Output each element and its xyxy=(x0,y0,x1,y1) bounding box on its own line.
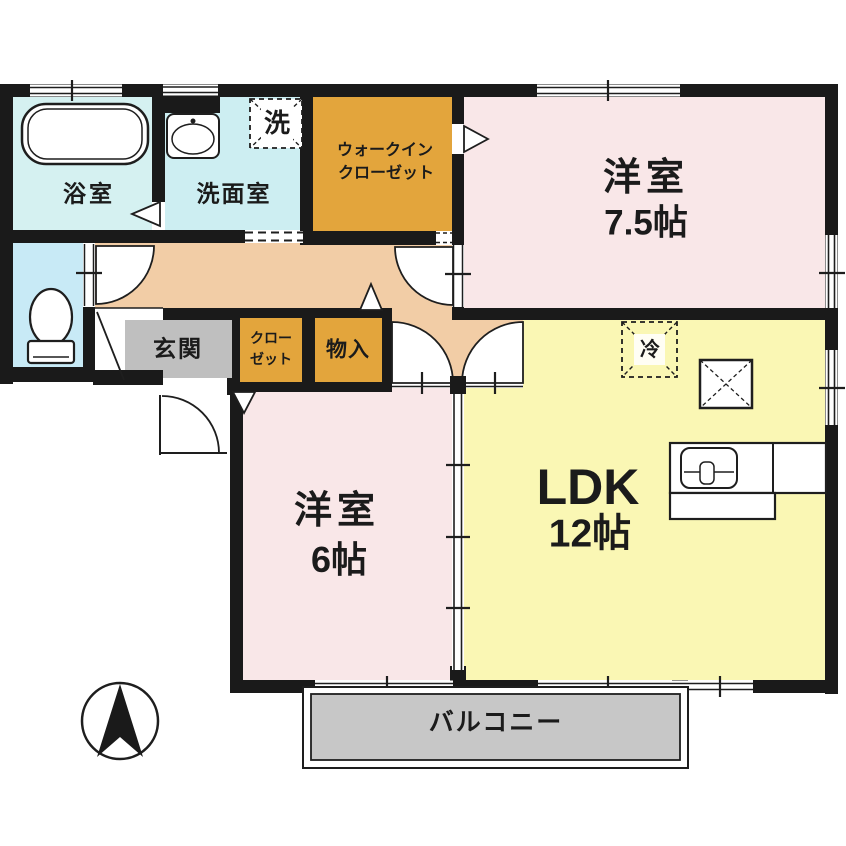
bedroom1-label: 洋室 xyxy=(603,159,689,197)
entrance-label: 玄関 xyxy=(153,338,203,361)
bedroom1-size: 7.5帖 xyxy=(604,206,688,241)
ldk-label: LDK xyxy=(537,462,640,512)
wall-bedroom2-left xyxy=(230,378,243,693)
wall-top xyxy=(8,84,838,97)
wall-bath-bottom xyxy=(0,230,245,243)
wall-entrance-bottom xyxy=(93,370,163,385)
toilet-fixture xyxy=(28,289,74,363)
walk-in-closet-floor xyxy=(313,97,452,231)
washroom-sliding-door xyxy=(245,231,303,243)
wic-opening xyxy=(436,231,452,245)
compass xyxy=(82,683,158,759)
kitchen-faucet xyxy=(700,462,714,484)
wall-above-sink xyxy=(163,95,220,113)
wic-label-line1: ウォークイン xyxy=(337,143,433,159)
refrigerator-label: 冷 xyxy=(640,340,660,360)
washroom-label: 洗面室 xyxy=(197,183,272,206)
storage-label: 物入 xyxy=(326,340,370,361)
bedroom2-label: 洋室 xyxy=(294,492,380,530)
wall-toilet-bottom xyxy=(0,367,95,382)
hatch-box xyxy=(700,360,752,408)
window-washroom-top xyxy=(163,85,218,96)
wall-wic-bottom xyxy=(300,231,452,245)
bathroom-label: 浴室 xyxy=(63,183,115,206)
washbasin xyxy=(167,114,219,158)
ldk-size: 12帖 xyxy=(549,515,631,554)
balcony-label: バルコニー xyxy=(429,711,564,736)
floor-plan-drawing xyxy=(0,0,846,846)
bedroom1-floor xyxy=(464,97,825,308)
wic-label-line2: クローゼット xyxy=(338,166,434,182)
wall-ldk-bottom-east xyxy=(753,680,838,693)
bathtub xyxy=(22,104,148,164)
closet-label-line1: クロー xyxy=(250,331,292,345)
bedroom2-size: 6帖 xyxy=(311,542,367,578)
hallway-leg xyxy=(392,308,452,320)
closet-label-line2: ゼット xyxy=(250,352,292,366)
bedroom2-floor xyxy=(243,385,453,680)
wall-mid-east xyxy=(452,308,838,320)
entrance-door xyxy=(160,395,227,455)
floor-plan: 浴室 洗面室 洗 ウォークイン クローゼット 洋室 7.5帖 玄関 クロー ゼッ… xyxy=(0,0,846,846)
closet-floor xyxy=(240,318,302,382)
laundry-label: 洗 xyxy=(264,110,290,136)
